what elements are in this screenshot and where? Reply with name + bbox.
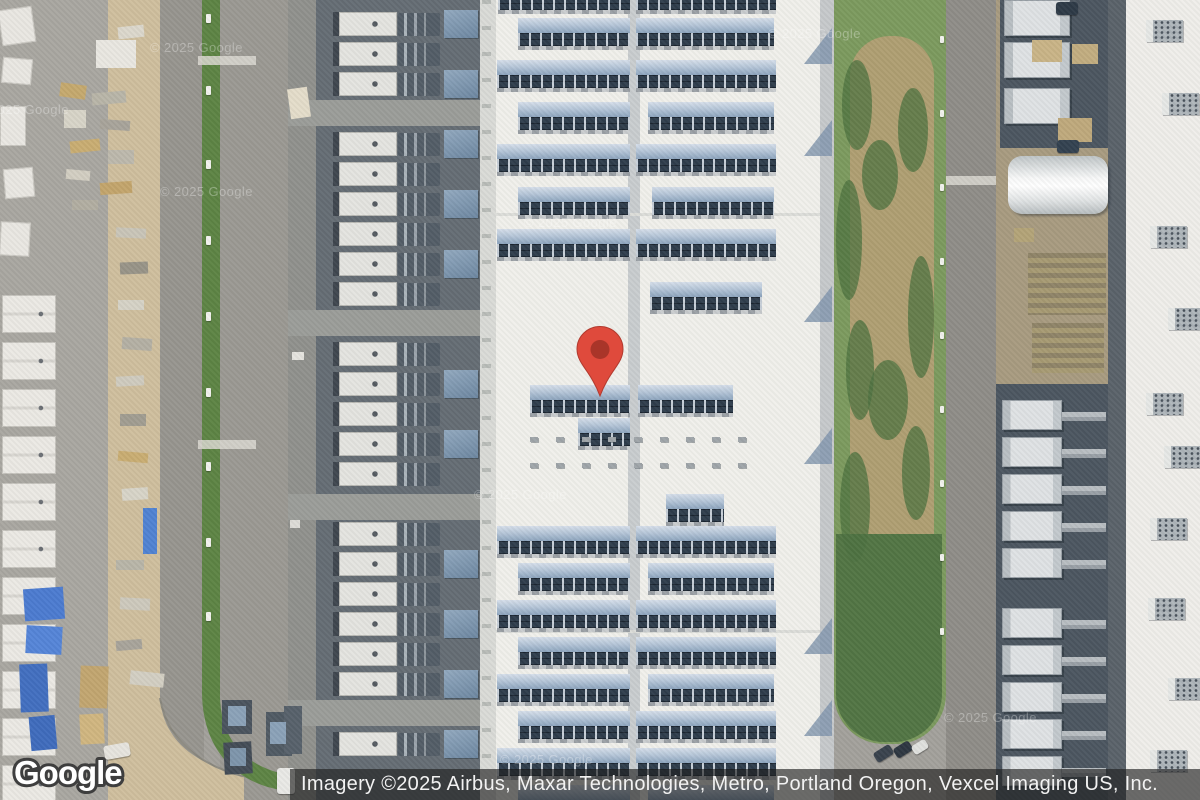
construction-material bbox=[118, 300, 144, 310]
panel-base-strip bbox=[636, 172, 776, 176]
panel-canopy bbox=[497, 748, 630, 763]
panel-canopy bbox=[636, 229, 776, 244]
pipe-assembly bbox=[398, 373, 440, 396]
crosswalk bbox=[198, 440, 256, 449]
roof-vent bbox=[608, 437, 616, 442]
panel-base-strip bbox=[497, 88, 630, 92]
pipe-assembly bbox=[398, 223, 440, 246]
east-pipe bbox=[1062, 731, 1106, 736]
panel-modules bbox=[518, 202, 630, 215]
light-post bbox=[206, 388, 211, 397]
panel-base-strip bbox=[530, 413, 630, 417]
construction-material bbox=[100, 181, 133, 195]
panel-canopy bbox=[518, 102, 630, 117]
light-post bbox=[206, 312, 211, 321]
panel-modules bbox=[636, 159, 776, 172]
pipe-assembly bbox=[398, 253, 440, 276]
construction-material bbox=[270, 722, 286, 744]
panel-base-strip bbox=[578, 446, 630, 450]
panel-canopy bbox=[648, 102, 774, 117]
construction-material bbox=[96, 40, 136, 68]
light-post bbox=[940, 258, 944, 265]
panel-modules bbox=[636, 0, 776, 10]
generator-unit bbox=[333, 192, 397, 216]
vegetation-patch bbox=[902, 426, 930, 520]
panel-canopy bbox=[497, 60, 630, 75]
rooftop-hvac-unit bbox=[1150, 226, 1187, 248]
panel-canopy bbox=[648, 563, 774, 578]
construction-material bbox=[143, 508, 157, 554]
panel-modules bbox=[497, 541, 630, 554]
pallet-stack bbox=[1028, 253, 1106, 315]
construction-material bbox=[120, 597, 151, 611]
panel-modules bbox=[636, 244, 776, 257]
pipe-assembly bbox=[398, 673, 440, 696]
cooling-block bbox=[444, 730, 478, 758]
construction-material bbox=[72, 200, 98, 210]
yard-cross-lane bbox=[288, 494, 480, 520]
rooftop-hvac-unit bbox=[1164, 446, 1200, 468]
generator-unit bbox=[333, 522, 397, 546]
panel-base-strip bbox=[518, 215, 630, 219]
construction-material bbox=[1058, 118, 1092, 142]
east-cooling-unit bbox=[1002, 608, 1062, 638]
roof-vent bbox=[556, 437, 564, 442]
panel-base-strip bbox=[518, 130, 630, 134]
panel-canopy bbox=[518, 711, 630, 726]
east-pipe bbox=[1062, 560, 1106, 565]
light-post bbox=[940, 184, 944, 191]
east-cooling-unit bbox=[1002, 400, 1062, 430]
construction-material bbox=[64, 110, 86, 128]
generator-unit bbox=[333, 222, 397, 246]
pin-inner-circle bbox=[591, 340, 610, 359]
panel-modules bbox=[497, 244, 630, 257]
rooftop-hvac-unit bbox=[1168, 308, 1200, 330]
roof-vent bbox=[634, 463, 642, 468]
light-post bbox=[206, 14, 211, 23]
east-cooling-unit bbox=[1002, 645, 1062, 675]
panel-base-strip bbox=[636, 88, 776, 92]
panel-base-strip bbox=[518, 739, 630, 743]
panel-canopy bbox=[636, 600, 776, 615]
panel-modules bbox=[518, 33, 630, 46]
roof-vent bbox=[582, 437, 590, 442]
roof-vent bbox=[660, 463, 668, 468]
pipe-assembly bbox=[398, 733, 440, 756]
light-post bbox=[940, 406, 944, 413]
panel-modules bbox=[650, 297, 762, 310]
roof-vent bbox=[660, 437, 668, 442]
panel-modules bbox=[498, 0, 630, 10]
panel-canopy bbox=[518, 18, 630, 33]
panel-base-strip bbox=[636, 257, 776, 261]
cooling-block bbox=[444, 190, 478, 218]
panel-modules bbox=[638, 400, 733, 413]
panel-canopy bbox=[636, 711, 776, 726]
construction-material bbox=[79, 666, 108, 709]
roof-vent bbox=[686, 463, 694, 468]
light-post bbox=[940, 36, 944, 43]
panel-modules bbox=[518, 578, 630, 591]
pipe-assembly bbox=[398, 433, 440, 456]
cooling-block bbox=[444, 610, 478, 638]
crosswalk bbox=[946, 176, 996, 185]
panel-modules bbox=[648, 578, 774, 591]
panel-canopy bbox=[650, 282, 762, 297]
vegetation-patch bbox=[836, 180, 862, 300]
pipe-assembly bbox=[398, 643, 440, 666]
roof-vent bbox=[530, 463, 538, 468]
construction-material bbox=[122, 337, 153, 351]
cooling-block bbox=[444, 430, 478, 458]
cooling-block bbox=[444, 670, 478, 698]
panel-modules bbox=[497, 615, 630, 628]
trailer-unit-small bbox=[1, 57, 33, 86]
panel-modules bbox=[636, 75, 776, 88]
panel-modules bbox=[636, 726, 776, 739]
roof-vent bbox=[712, 437, 720, 442]
light-post bbox=[206, 538, 211, 547]
light-post bbox=[940, 110, 944, 117]
trailer-unit-small bbox=[0, 106, 26, 146]
pipe-assembly bbox=[398, 193, 440, 216]
panel-canopy bbox=[578, 418, 630, 433]
rooftop-hvac-unit bbox=[1148, 598, 1185, 620]
generator-unit bbox=[333, 672, 397, 696]
generator-unit bbox=[333, 582, 397, 606]
roof-vent bbox=[582, 463, 590, 468]
vegetation-patch bbox=[862, 140, 898, 210]
trailer-unit bbox=[2, 295, 56, 333]
tent-building bbox=[1008, 156, 1108, 214]
east-cooling-unit bbox=[1002, 682, 1062, 712]
trailer-unit bbox=[2, 483, 56, 521]
construction-material bbox=[122, 487, 149, 501]
generator-unit bbox=[333, 72, 397, 96]
panel-canopy bbox=[636, 526, 776, 541]
rooftop-hvac-unit bbox=[1162, 93, 1199, 115]
panel-modules bbox=[497, 689, 630, 702]
google-logo-text: Google bbox=[14, 754, 122, 791]
pipe-assembly bbox=[398, 613, 440, 636]
panel-canopy bbox=[666, 494, 724, 509]
trailer-unit bbox=[2, 530, 56, 568]
vegetation-patch bbox=[868, 360, 908, 440]
east-cooling-unit bbox=[1002, 511, 1062, 541]
construction-material bbox=[120, 414, 146, 426]
east-pipe bbox=[1062, 523, 1106, 528]
construction-material bbox=[292, 352, 304, 360]
panel-base-strip bbox=[518, 46, 630, 50]
panel-modules bbox=[518, 726, 630, 739]
rooftop-hvac-unit bbox=[1146, 393, 1183, 415]
pipe-assembly bbox=[398, 583, 440, 606]
light-post bbox=[206, 612, 211, 621]
panel-modules bbox=[497, 159, 630, 172]
construction-material bbox=[284, 706, 302, 754]
generator-unit bbox=[333, 42, 397, 66]
pipe-assembly bbox=[398, 13, 440, 36]
attribution-bar: Imagery ©2025 Airbus, Maxar Technologies… bbox=[290, 769, 1200, 800]
panel-base-strip bbox=[638, 413, 733, 417]
roof-vent bbox=[608, 463, 616, 468]
roof-vent bbox=[556, 463, 564, 468]
vegetation-patch bbox=[842, 60, 872, 150]
vegetation-patch bbox=[840, 452, 870, 562]
panel-modules bbox=[648, 689, 774, 702]
crosswalk bbox=[198, 56, 256, 65]
panel-modules bbox=[497, 75, 630, 88]
construction-material bbox=[1014, 228, 1034, 242]
panel-modules bbox=[518, 117, 630, 130]
pipe-assembly bbox=[398, 463, 440, 486]
generator-unit bbox=[333, 402, 397, 426]
generator-unit bbox=[333, 612, 397, 636]
pipe-assembly bbox=[398, 523, 440, 546]
east-pipe bbox=[1062, 694, 1106, 699]
panel-canopy bbox=[518, 187, 630, 202]
panel-base-strip bbox=[497, 257, 630, 261]
light-post bbox=[940, 480, 944, 487]
pipe-assembly bbox=[398, 43, 440, 66]
generator-unit bbox=[333, 12, 397, 36]
panel-base-strip bbox=[636, 739, 776, 743]
panel-base-strip bbox=[636, 665, 776, 669]
light-post bbox=[940, 332, 944, 339]
generator-unit bbox=[333, 132, 397, 156]
panel-base-strip bbox=[497, 702, 630, 706]
vegetation-patch bbox=[908, 256, 934, 378]
cooling-block bbox=[444, 130, 478, 158]
generator-unit bbox=[333, 282, 397, 306]
vehicle bbox=[1056, 2, 1078, 15]
east-pipe bbox=[1062, 449, 1106, 454]
panel-base-strip bbox=[636, 628, 776, 632]
trailer-unit bbox=[2, 436, 56, 474]
panel-canopy bbox=[497, 144, 630, 159]
east-pipe bbox=[1062, 657, 1106, 662]
panel-base-strip bbox=[648, 130, 774, 134]
panel-canopy bbox=[636, 60, 776, 75]
panel-base-strip bbox=[652, 215, 774, 219]
yard-cross-lane bbox=[288, 700, 480, 726]
vegetation-patch bbox=[898, 88, 928, 172]
construction-material bbox=[230, 748, 246, 766]
pipe-assembly bbox=[398, 133, 440, 156]
generator-unit bbox=[333, 372, 397, 396]
construction-material bbox=[287, 87, 311, 119]
cooling-block bbox=[444, 70, 478, 98]
panel-base-strip bbox=[648, 702, 774, 706]
panel-modules bbox=[636, 652, 776, 665]
light-post bbox=[940, 628, 944, 635]
pin-body bbox=[577, 327, 623, 397]
panel-canopy bbox=[497, 600, 630, 615]
light-post bbox=[206, 86, 211, 95]
pipe-assembly bbox=[398, 403, 440, 426]
construction-material bbox=[23, 587, 65, 622]
panel-canopy bbox=[636, 144, 776, 159]
roof-vent bbox=[738, 437, 746, 442]
trailer-unit-small bbox=[0, 221, 31, 257]
east-cooling-unit bbox=[1002, 548, 1062, 578]
construction-material bbox=[120, 262, 148, 275]
generator-unit bbox=[333, 342, 397, 366]
light-post bbox=[940, 554, 944, 561]
panel-base-strip bbox=[648, 591, 774, 595]
panel-canopy bbox=[497, 229, 630, 244]
east-pipe bbox=[1062, 620, 1106, 625]
google-logo[interactable]: Google bbox=[8, 748, 148, 796]
cooling-block bbox=[444, 370, 478, 398]
light-post bbox=[206, 236, 211, 245]
map-canvas[interactable]: © 2025 Google© 2025 Google© 2025 Google©… bbox=[0, 0, 1200, 800]
roof-vent bbox=[686, 437, 694, 442]
generator-unit bbox=[333, 432, 397, 456]
roof-vent bbox=[738, 463, 746, 468]
east-cooling-unit bbox=[1002, 719, 1062, 749]
east-cooling-unit bbox=[1002, 474, 1062, 504]
panel-canopy bbox=[636, 18, 774, 33]
east-cooling-unit bbox=[1002, 437, 1062, 467]
panel-canopy bbox=[652, 187, 774, 202]
generator-unit bbox=[333, 552, 397, 576]
construction-material bbox=[25, 625, 62, 655]
panel-canopy bbox=[518, 637, 630, 652]
panel-canopy bbox=[638, 385, 733, 400]
trailer-unit-small bbox=[3, 167, 36, 200]
panel-modules bbox=[648, 117, 774, 130]
panel-canopy bbox=[518, 563, 630, 578]
roof-vent bbox=[712, 463, 720, 468]
pallet-stack bbox=[1032, 323, 1104, 373]
panel-base-strip bbox=[518, 665, 630, 669]
generator-unit bbox=[333, 162, 397, 186]
panel-modules bbox=[636, 541, 776, 554]
construction-material bbox=[116, 227, 146, 239]
panel-canopy bbox=[636, 637, 776, 652]
construction-material bbox=[116, 375, 144, 386]
panel-canopy bbox=[648, 674, 774, 689]
panel-modules bbox=[652, 202, 774, 215]
east-pipe bbox=[1062, 412, 1106, 417]
panel-base-strip bbox=[497, 628, 630, 632]
east-pipe bbox=[1062, 486, 1106, 491]
panel-base-strip bbox=[636, 554, 776, 558]
light-post bbox=[206, 462, 211, 471]
construction-material bbox=[66, 169, 91, 181]
construction-material bbox=[19, 664, 49, 713]
cooling-block bbox=[444, 250, 478, 278]
panel-canopy bbox=[497, 526, 630, 541]
pipe-assembly bbox=[398, 553, 440, 576]
rooftop-hvac-unit bbox=[1168, 678, 1200, 700]
panel-canopy bbox=[497, 674, 630, 689]
panel-modules bbox=[636, 615, 776, 628]
cooling-block bbox=[444, 10, 478, 38]
panel-base-strip bbox=[636, 10, 776, 14]
panel-modules bbox=[530, 400, 630, 413]
pipe-assembly bbox=[398, 343, 440, 366]
rooftop-hvac-unit bbox=[1146, 20, 1183, 42]
yard-cross-lane bbox=[288, 100, 480, 126]
roof-vent bbox=[634, 437, 642, 442]
yard-cross-lane bbox=[288, 310, 480, 336]
map-pin-marker[interactable] bbox=[575, 325, 625, 398]
construction-material bbox=[1032, 40, 1062, 62]
generator-unit bbox=[333, 642, 397, 666]
generator-unit bbox=[333, 732, 397, 756]
panel-modules bbox=[666, 509, 724, 522]
vehicle bbox=[1057, 140, 1079, 153]
construction-material bbox=[228, 706, 246, 726]
trailer-unit bbox=[2, 389, 56, 427]
trailer-unit-small bbox=[0, 6, 36, 46]
construction-material bbox=[29, 715, 58, 751]
panel-base-strip bbox=[636, 46, 774, 50]
panel-modules bbox=[518, 652, 630, 665]
pipe-assembly bbox=[398, 73, 440, 96]
construction-material bbox=[79, 713, 105, 744]
light-post bbox=[206, 160, 211, 169]
trailer-unit bbox=[2, 342, 56, 380]
roof-vent bbox=[530, 437, 538, 442]
generator-unit bbox=[333, 252, 397, 276]
panel-base-strip bbox=[497, 554, 630, 558]
panel-base-strip bbox=[518, 591, 630, 595]
pipe-assembly bbox=[398, 283, 440, 306]
generator-unit bbox=[333, 462, 397, 486]
rooftop-hvac-unit bbox=[1150, 518, 1187, 540]
panel-canopy bbox=[636, 748, 776, 763]
panel-modules bbox=[636, 33, 774, 46]
cooling-block bbox=[444, 550, 478, 578]
construction-material bbox=[290, 520, 300, 528]
attribution-text: Imagery ©2025 Airbus, Maxar Technologies… bbox=[301, 773, 1158, 795]
construction-material bbox=[108, 150, 134, 164]
construction-material bbox=[116, 560, 144, 570]
panel-base-strip bbox=[498, 10, 630, 14]
construction-material bbox=[100, 119, 131, 131]
construction-material bbox=[1072, 44, 1098, 64]
panel-base-strip bbox=[497, 172, 630, 176]
panel-base-strip bbox=[650, 310, 762, 314]
pipe-assembly bbox=[398, 163, 440, 186]
